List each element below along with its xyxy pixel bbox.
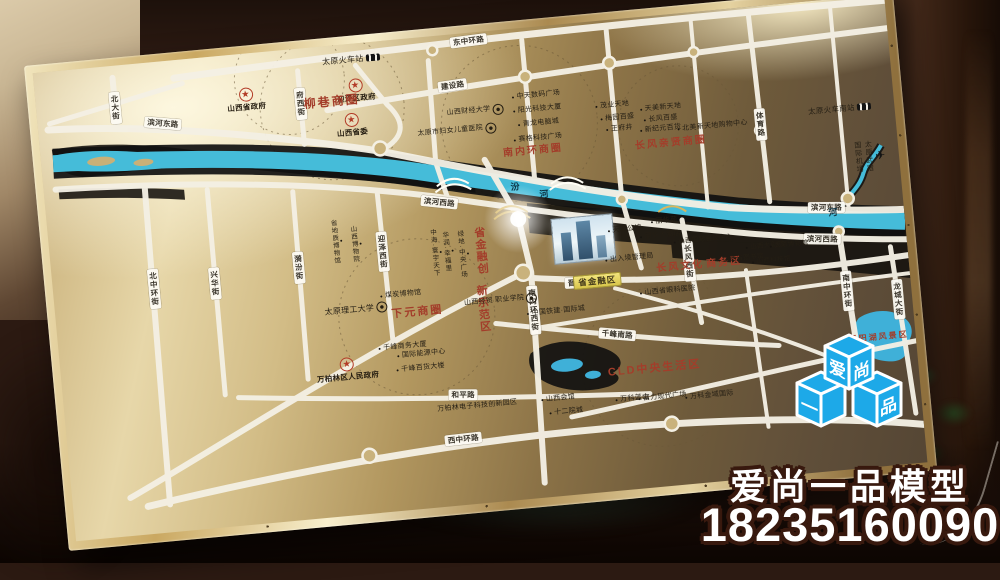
map-label-place: 茂业天地 xyxy=(595,100,630,112)
map-label-place: 煤炭博物馆 xyxy=(380,289,422,301)
map-label-zone: 省金融创 xyxy=(471,226,489,275)
train-icon xyxy=(856,102,871,110)
circle-icon xyxy=(526,292,538,304)
circle-icon xyxy=(485,122,497,134)
map-label-road: 滨河西路 xyxy=(420,195,458,210)
map-label-zone: 长风亲贤商圈 xyxy=(635,134,708,153)
map-label-place: 绿地·中央广场 xyxy=(455,230,472,279)
map-label-place: 山西省眼科医院 xyxy=(639,285,696,299)
map-label-road: 龙城大街 xyxy=(891,279,906,320)
map-label-place: 梅园百盛 xyxy=(600,113,635,125)
map-label-place: 万科金域国际 xyxy=(685,390,734,403)
map-label-road: 北中环街 xyxy=(147,269,162,310)
star-marker: ★ xyxy=(348,78,363,93)
map-label-gov: ★山西省委 xyxy=(335,112,368,139)
map-label-road: 东中环路 xyxy=(449,33,487,49)
map-label-place: 山西财经大学 xyxy=(446,103,504,119)
map-label-zone: 下元商圈 xyxy=(391,304,444,322)
map-label-place: 太原火车站 xyxy=(322,52,380,67)
map-label-river: 汾 xyxy=(510,181,520,193)
map-label-road: 建设路 xyxy=(437,78,468,93)
map-label-road: 体育路 xyxy=(754,108,768,140)
map-label-place: 山西国际会议中心 xyxy=(673,233,733,246)
circle-icon xyxy=(376,301,388,313)
photo-of-map-plaque: { "watermark": { "company": "爱尚一品模型", "p… xyxy=(0,0,1000,563)
star-marker: ★ xyxy=(238,87,253,102)
map-label-place: 北美新天地购物中心 xyxy=(677,119,748,134)
map-label-place: 天美新天地 xyxy=(640,102,682,114)
map-label-place: 丽华苑 xyxy=(650,216,678,227)
map-label-road: 南中环街 xyxy=(840,270,855,311)
map-label-road: 漪汾街 xyxy=(292,251,306,283)
map-label-place: 青龙电脑城 xyxy=(517,118,559,130)
circle-icon xyxy=(492,103,504,115)
map-label-place: 山西会馆 xyxy=(541,393,576,405)
map-label-road: 和平路 xyxy=(449,389,478,400)
star-marker: ★ xyxy=(339,357,354,372)
star-marker: ★ xyxy=(344,112,359,127)
map-label-road: 迎泽西街 xyxy=(375,231,390,272)
map-label-road: 滨河东路 xyxy=(144,116,182,130)
map-label-place: 千峰百货大楼 xyxy=(396,362,445,375)
map-label-place: 新纪元百货 xyxy=(640,123,682,135)
map-label-place: 出入境管理局 xyxy=(605,252,654,265)
map-label-road: 千峰南路 xyxy=(598,327,636,341)
map-label-place: 中天数码广场 xyxy=(511,89,560,102)
map-label-road: 滨河东路 xyxy=(808,202,845,213)
map-label-place: ✈太原武宿国际机场 xyxy=(852,139,888,174)
plane-icon: ✈ xyxy=(874,147,887,163)
map-label-place: 万柏林电子科技创新园区 xyxy=(437,399,518,415)
map-label-place: 太原市妇女儿童医院 xyxy=(417,122,496,140)
map-label-place: 华润·幸福里 xyxy=(440,231,457,273)
map-label-zone: CLD中央生活区 xyxy=(607,358,701,380)
watermark-phone: 18235160090 xyxy=(680,497,1000,552)
watermark-logo: 爱 尚 一 品 xyxy=(781,331,917,443)
map-label-gov: ★万柏林区人民政府 xyxy=(315,355,379,385)
map-label-project: 省金融区 xyxy=(573,272,622,291)
map-label-place: 山西博物院 xyxy=(348,225,364,264)
map-label-road: 西中环路 xyxy=(444,432,482,447)
map-label-place: 阳光科技大厦 xyxy=(513,103,562,116)
map-label-place: 十二院城 xyxy=(549,407,584,419)
map-label-river: 河 xyxy=(828,207,838,219)
map-label-place: 太原理工大学 xyxy=(324,301,388,318)
map-label-place: 天安公馆 xyxy=(607,224,642,236)
map-label-road: 滨河西路 xyxy=(804,233,841,244)
map-label-place: 王府井 xyxy=(606,124,634,135)
map-label-place: 省地质博物馆 xyxy=(328,219,345,265)
map-label-gov: ★山西省政府 xyxy=(226,86,267,113)
map-label-road: 兴华街 xyxy=(208,267,222,299)
map-label-road: 北大街 xyxy=(108,92,122,124)
map-label-zone: 南内环商圈 xyxy=(503,143,564,160)
train-icon xyxy=(365,54,380,62)
map-label-river: 河 xyxy=(539,189,549,201)
map-label-place: 太原火车南站 xyxy=(808,101,871,116)
map-label-zone: 柳巷商圈 xyxy=(303,92,360,112)
